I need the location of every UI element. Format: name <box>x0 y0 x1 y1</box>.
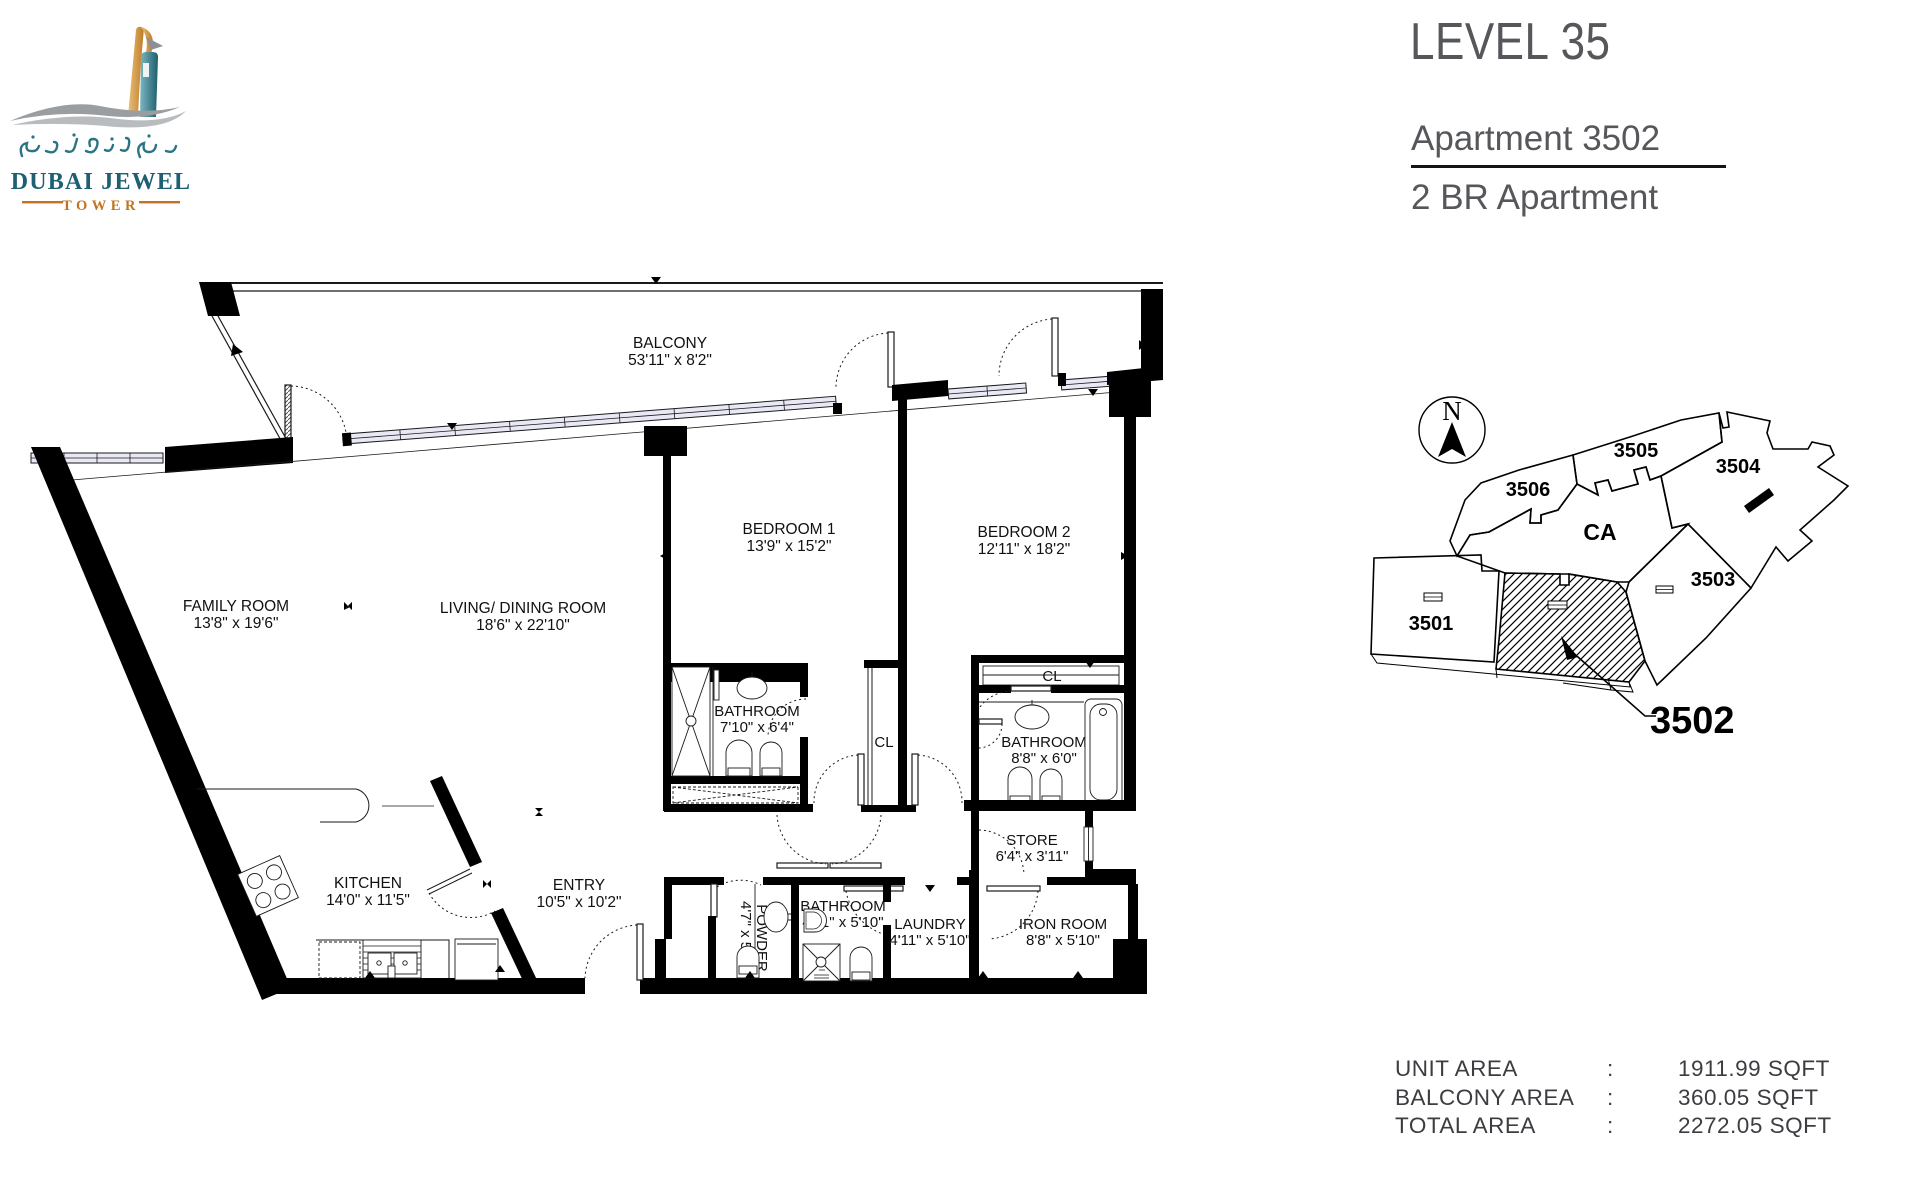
svg-text:BEDROOM 2: BEDROOM 2 <box>977 524 1070 541</box>
svg-text:ENTRY: ENTRY <box>553 877 605 894</box>
svg-text:3502: 3502 <box>1650 700 1735 742</box>
svg-text:FAMILY ROOM: FAMILY ROOM <box>183 598 289 615</box>
svg-text:7'10" x 6'4": 7'10" x 6'4" <box>720 719 794 736</box>
svg-text:8'8" x 6'0": 8'8" x 6'0" <box>1011 750 1077 767</box>
svg-text:12'11" x 18'2": 12'11" x 18'2" <box>978 541 1070 558</box>
svg-text:CA: CA <box>1583 519 1616 545</box>
svg-text:13'8" x 19'6": 13'8" x 19'6" <box>193 615 278 632</box>
svg-text:53'11" x 8'2": 53'11" x 8'2" <box>628 352 712 369</box>
svg-text:18'6" x 22'10": 18'6" x 22'10" <box>476 617 570 634</box>
svg-text:4'11" x 5'10": 4'11" x 5'10" <box>889 932 970 949</box>
svg-text:3503: 3503 <box>1691 569 1736 591</box>
svg-text:13'9" x 15'2": 13'9" x 15'2" <box>746 538 831 555</box>
svg-text:N: N <box>1442 396 1462 426</box>
svg-text:BATHROOM: BATHROOM <box>1001 734 1087 751</box>
svg-text:14'0" x 11'5": 14'0" x 11'5" <box>326 892 410 909</box>
svg-text:10'5" x 10'2": 10'5" x 10'2" <box>536 894 621 911</box>
svg-text:3501: 3501 <box>1409 613 1454 635</box>
svg-text:BALCONY: BALCONY <box>633 335 707 352</box>
svg-text:LIVING/ DINING ROOM: LIVING/ DINING ROOM <box>440 600 606 617</box>
svg-text:3506: 3506 <box>1506 479 1551 501</box>
svg-text:BEDROOM 1: BEDROOM 1 <box>742 521 835 538</box>
svg-text:IRON ROOM: IRON ROOM <box>1019 916 1107 933</box>
svg-text:3504: 3504 <box>1716 456 1761 478</box>
svg-text:STORE: STORE <box>1006 832 1057 849</box>
svg-text:BATHROOM: BATHROOM <box>714 703 800 720</box>
svg-text:8'8" x 5'10": 8'8" x 5'10" <box>1026 932 1100 949</box>
svg-text:LAUNDRY: LAUNDRY <box>894 916 965 933</box>
svg-text:3505: 3505 <box>1614 440 1659 462</box>
svg-text:6'4" x 3'11": 6'4" x 3'11" <box>996 848 1069 865</box>
svg-text:KITCHEN: KITCHEN <box>334 875 402 892</box>
svg-text:CL: CL <box>1042 668 1061 685</box>
svg-text:CL: CL <box>874 734 893 751</box>
